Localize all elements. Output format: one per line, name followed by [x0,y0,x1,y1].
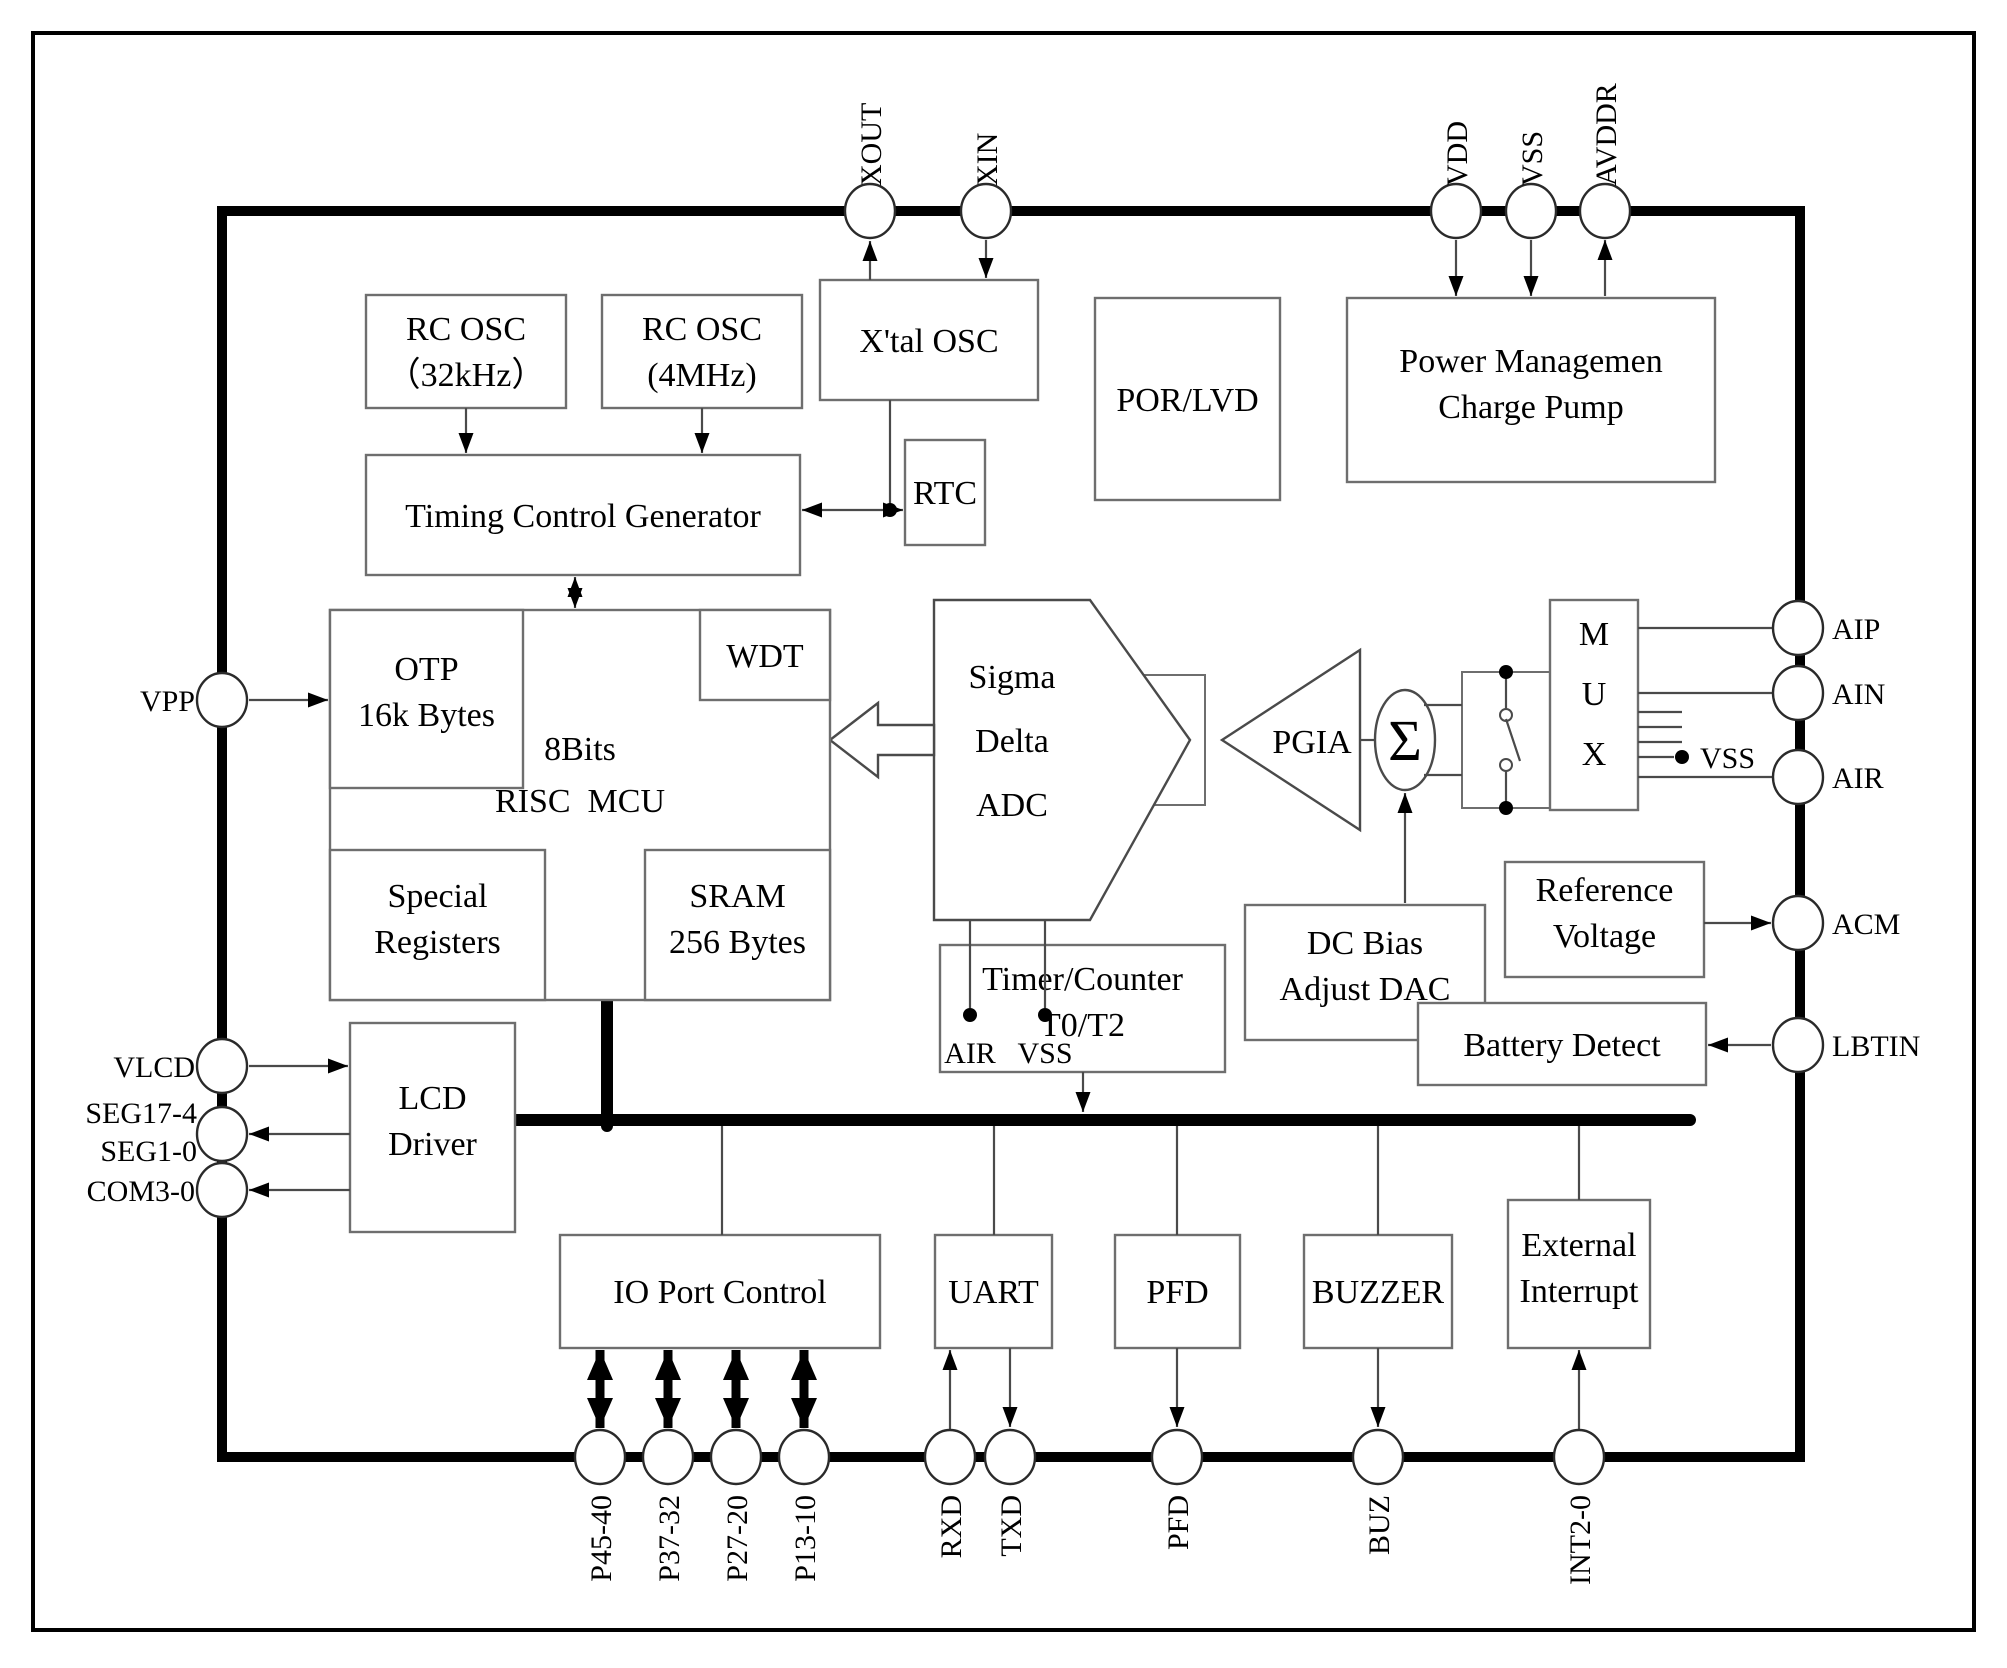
lcd-driver-label: LCD [399,1080,467,1117]
block-diagram: SigmaDeltaADCPGIARC OSC（32kHz）RC OSC(4MH… [0,0,2007,1663]
xout-pin-label: XOUT [855,103,888,186]
power-mgmt-label: Power Managemen [1399,343,1662,380]
vlcd-pin [197,1039,247,1093]
xin-pin-label: XIN [971,133,1004,186]
junction-dot [1499,801,1513,815]
xout-pin [845,184,895,238]
special-registers-label: Registers [374,924,501,961]
txd-pin [985,1430,1035,1484]
int2-0-pin-label: INT2-0 [1564,1495,1597,1585]
rxd-pin-label: RXD [935,1495,968,1558]
seg17-4-label: SEG17-4 [85,1097,197,1130]
lbtin-pin-label: LBTIN [1832,1030,1920,1063]
p45-40-pin [575,1430,625,1484]
chip-block-diagram-page: SigmaDeltaADCPGIARC OSC（32kHz）RC OSC(4MH… [0,0,2007,1663]
pfd-pin-pin-label: PFD [1162,1495,1195,1550]
com3-0-pin [197,1163,247,1217]
otp-label: OTP [394,651,458,688]
vdd-pin-label: VDD [1441,121,1474,186]
aip-pin [1773,601,1823,655]
summation-symbol: Σ [1388,708,1422,773]
buz-pin [1353,1430,1403,1484]
sigma-delta-adc-label: Delta [975,723,1049,760]
acm-pin-label: ACM [1832,908,1900,941]
vdd-pin [1431,184,1481,238]
pgia-amp-label: PGIA [1272,724,1352,761]
air-pin [1773,750,1823,804]
wdt-label: WDT [726,638,804,675]
p27-20-pin-label: P27-20 [721,1495,754,1582]
power-mgmt-label: Charge Pump [1438,389,1623,426]
sram-label: SRAM [689,878,785,915]
adc-vss-label: VSS [1017,1037,1072,1070]
special-registers-label: Special [387,878,487,915]
junction-dot [1038,1008,1052,1022]
reference-voltage-label: Reference [1536,872,1674,909]
adc-air-label: AIR [944,1037,996,1070]
sigma-delta-adc-label: ADC [976,787,1048,824]
lcd-driver-label: Driver [388,1126,477,1163]
p37-32-pin-label: P37-32 [653,1495,686,1582]
rxd-pin [925,1430,975,1484]
reference-voltage-label: Voltage [1553,918,1656,955]
ain-pin [1773,666,1823,720]
aip-pin-label: AIP [1832,613,1880,646]
p37-32-pin [643,1430,693,1484]
sram-label: 256 Bytes [669,924,806,961]
rc-osc-32k-label: （32kHz） [387,356,546,394]
rtc-label: RTC [913,475,977,512]
rc-osc-4m-label: RC OSC [642,311,762,348]
p27-20-pin [711,1430,761,1484]
battery-detect-label: Battery Detect [1463,1027,1661,1064]
vpp-pin-label: VPP [140,685,195,718]
rc-osc-32k-label: RC OSC [406,311,526,348]
avddr-pin-label: AVDDR [1590,83,1623,186]
junction-dot [883,503,897,517]
p13-10-pin [779,1430,829,1484]
avddr-pin [1580,184,1630,238]
ain-pin-label: AIN [1832,678,1885,711]
com3-0-pin-label: COM3-0 [87,1175,195,1208]
vss-top-pin [1506,184,1556,238]
air-pin-label: AIR [1832,762,1884,795]
otp-label: 16k Bytes [358,697,495,734]
junction-dot [1675,750,1689,764]
mux-label: X [1582,736,1607,773]
sigma-delta-adc-label: Sigma [969,659,1056,696]
dc-bias-dac-label: DC Bias [1307,925,1423,962]
junction-dot [1499,665,1513,679]
acm-pin [1773,896,1823,950]
buz-pin-label: BUZ [1363,1495,1396,1555]
external-interrupt-label: External [1521,1227,1636,1264]
xtal-osc-label: X'tal OSC [859,323,998,360]
mux-label: U [1582,676,1607,713]
pfd-pin-pin [1152,1430,1202,1484]
p45-40-pin-label: P45-40 [585,1495,618,1582]
external-interrupt-label: Interrupt [1520,1273,1640,1310]
timer-counter-label: Timer/Counter [982,961,1184,998]
timing-control-label: Timing Control Generator [405,498,761,535]
p13-10-pin-label: P13-10 [789,1495,822,1582]
mux-vss-label: VSS [1700,742,1755,775]
uart-label: UART [948,1274,1039,1311]
seg-pin [197,1107,247,1161]
vss-top-pin-label: VSS [1516,131,1549,186]
rc-osc-4m-label: (4MHz) [647,357,757,394]
buzzer-label: BUZZER [1312,1274,1445,1311]
mux-label: M [1579,616,1609,653]
io-port-control-label: IO Port Control [613,1274,826,1311]
xin-pin [961,184,1011,238]
pfd-label: PFD [1146,1274,1208,1311]
vpp-pin [197,673,247,727]
vlcd-pin-label: VLCD [113,1051,195,1084]
seg1-0-label: SEG1-0 [100,1135,197,1168]
por-lvd-label: POR/LVD [1116,382,1258,419]
switch-contact [1500,759,1512,771]
lbtin-pin [1773,1018,1823,1072]
junction-dot [963,1008,977,1022]
txd-pin-label: TXD [995,1495,1028,1557]
int2-0-pin [1554,1430,1604,1484]
risc-mcu-label: 8Bits [544,731,616,768]
